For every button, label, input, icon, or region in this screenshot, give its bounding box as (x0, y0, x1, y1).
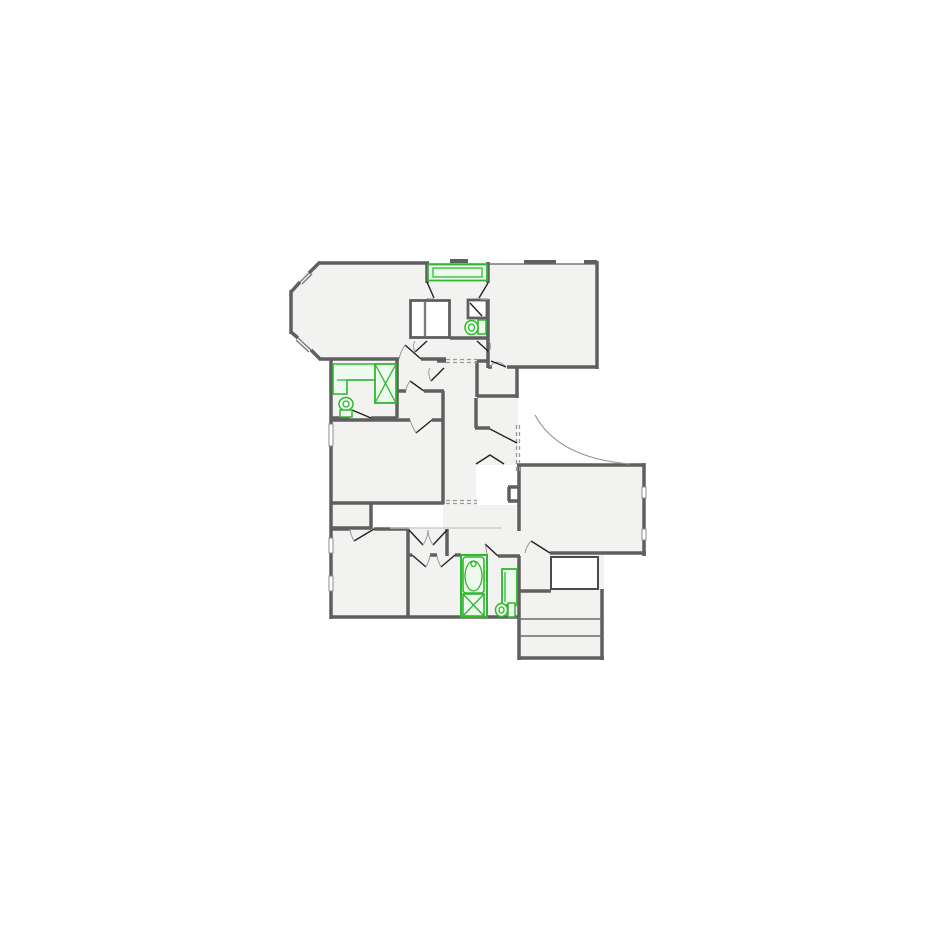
room-octagon-bedroom (292, 263, 428, 361)
hall-wide (476, 398, 518, 465)
hall-vertical (443, 361, 476, 505)
window-lintels (450, 261, 597, 262)
room-family (517, 464, 645, 555)
floor-plan (0, 0, 925, 925)
hall-lower (443, 505, 520, 528)
room-middle-left-bedroom (331, 420, 443, 504)
lower-bath-column (461, 555, 487, 617)
shower-left-icon (375, 364, 396, 403)
archway-arc (535, 415, 630, 464)
window-left-2 (329, 538, 333, 553)
window-family-2 (642, 529, 646, 540)
toilet-upper-icon (465, 320, 486, 335)
room-lower-left-bedroom (331, 528, 408, 617)
window-left-1 (329, 424, 333, 446)
toilet-lower-icon (496, 603, 516, 617)
stair-void (551, 557, 598, 589)
linen-cabinet-box (468, 300, 487, 318)
window-family-1 (642, 487, 646, 498)
hall-vestibule (397, 361, 446, 393)
bathtub-upper-icon (428, 265, 487, 281)
window-left-3 (329, 576, 333, 591)
room-upper-right-bedroom (488, 263, 597, 368)
floor-plan-svg (0, 0, 925, 925)
closet-upper-box (411, 301, 450, 338)
vanity-lower-icon (502, 569, 517, 605)
room-upper-closet (477, 368, 518, 398)
room-storage (397, 391, 443, 420)
toilet-left-icon (339, 398, 353, 418)
room-left-closet (331, 504, 371, 528)
